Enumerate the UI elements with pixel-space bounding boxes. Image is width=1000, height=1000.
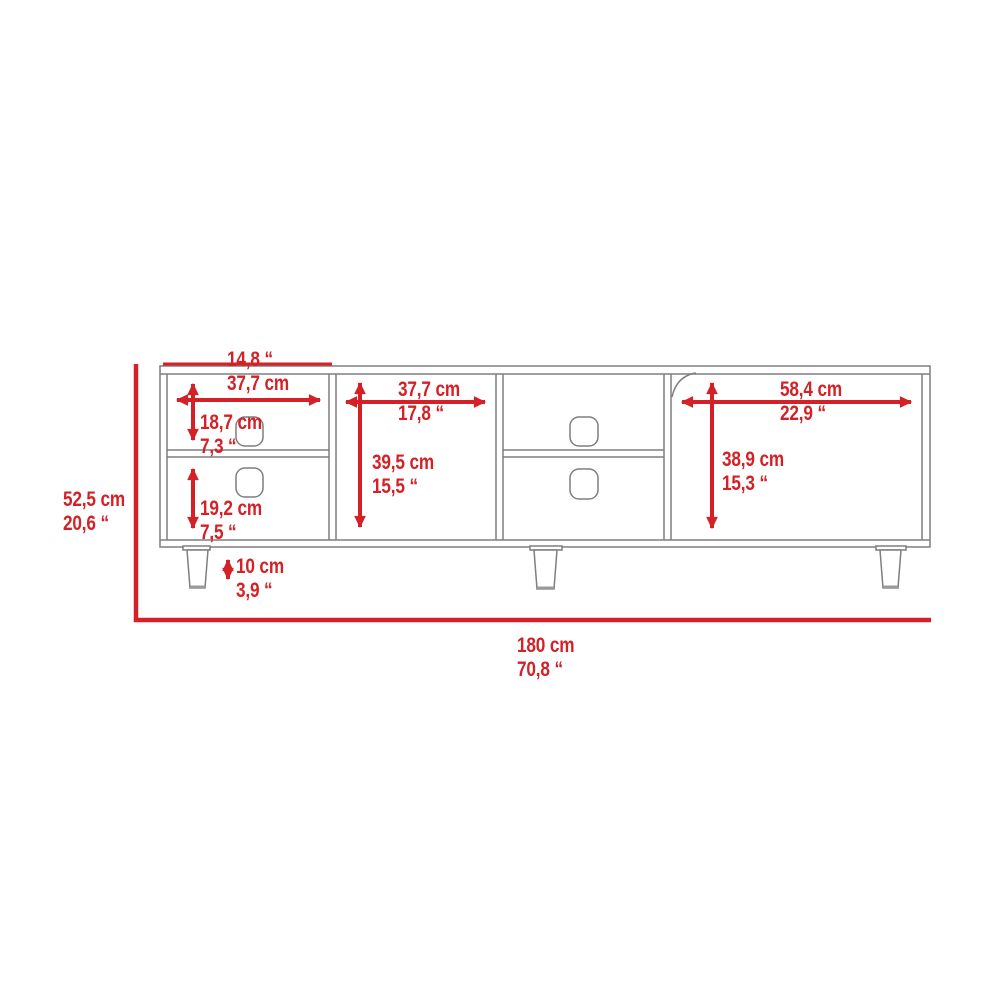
cable-hole: [570, 417, 598, 446]
cable-hole: [236, 468, 263, 497]
dim-overall-height-label: 52,5 cm 20,6 “: [63, 487, 125, 535]
dim-leg-height-label: 10 cm 3,9 “: [236, 554, 284, 602]
dim-comp1-top-height-label: 18,7 cm 7,3 “: [200, 410, 262, 458]
legs: [183, 546, 906, 589]
dim-comp2-width-label: 37,7 cm 17,8 “: [398, 377, 460, 425]
dim-comp1-bottom-height-label: 19,2 cm 7,5 “: [200, 496, 262, 544]
dim-overall-width-label: 180 cm 70,8 “: [517, 633, 574, 681]
dim-comp4-height-label: 38,9 cm 15,3 “: [722, 447, 784, 495]
leg: [880, 550, 901, 588]
dim-comp4-width-label: 58,4 cm 22,9 “: [780, 377, 842, 425]
dim-comp1-width-label: 14,8 “ 37,7 cm: [227, 347, 289, 395]
door-corner-cut: [672, 373, 696, 397]
leg: [534, 550, 557, 589]
tv-stand-dimension-diagram: 14,8 “ 37,7 cm 18,7 cm 7,3 “ 19,2 cm 7,5…: [0, 0, 1000, 1000]
leg: [187, 550, 208, 588]
dim-comp2-height-label: 39,5 cm 15,5 “: [372, 450, 434, 498]
cable-hole: [570, 469, 598, 499]
furniture-line-drawing: [0, 0, 1000, 1000]
